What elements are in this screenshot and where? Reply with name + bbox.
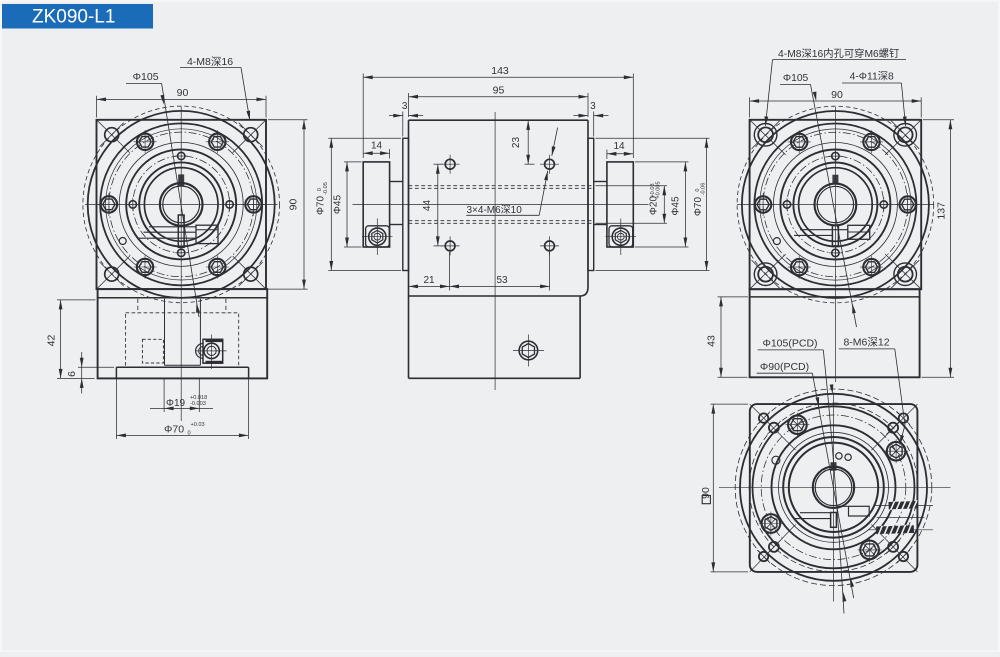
svg-text:Φ19: Φ19 [166,398,186,409]
svg-text:Φ70: Φ70 [693,197,704,217]
svg-text:+0.005: +0.005 [656,181,662,198]
svg-text:3: 3 [402,101,408,112]
svg-text:90: 90 [287,199,299,211]
svg-text:Φ105: Φ105 [783,73,809,84]
svg-text:3×4-M6深10: 3×4-M6深10 [467,204,523,216]
svg-text:90: 90 [700,487,712,499]
svg-text:4-M8深16: 4-M8深16 [187,56,233,68]
svg-text:42: 42 [46,335,58,347]
svg-text:95: 95 [493,84,505,96]
svg-text:4-Φ11深8: 4-Φ11深8 [850,71,894,83]
svg-text:23: 23 [511,137,522,149]
svg-text:Φ45: Φ45 [671,196,682,216]
svg-text:-0.06: -0.06 [700,183,706,196]
svg-text:137: 137 [936,202,948,220]
svg-text:Φ45: Φ45 [333,195,344,215]
svg-text:-0.05: -0.05 [323,182,329,195]
svg-text:Φ90(PCD): Φ90(PCD) [760,361,809,373]
svg-text:3: 3 [590,101,596,112]
svg-text:4-M8深16内孔可穿M6螺钉: 4-M8深16内孔可穿M6螺钉 [778,47,899,60]
svg-text:21: 21 [423,275,435,286]
svg-text:90: 90 [831,89,843,101]
svg-text:ZK090-L1: ZK090-L1 [32,7,115,28]
svg-text:43: 43 [705,335,717,347]
svg-text:+0.018: +0.018 [190,395,207,401]
svg-text:14: 14 [613,141,625,152]
svg-text:90: 90 [177,87,189,99]
svg-text:6: 6 [66,371,78,377]
svg-text:Φ70: Φ70 [315,196,326,216]
svg-text:+0.03: +0.03 [191,422,205,428]
svg-text:Φ70: Φ70 [164,423,184,435]
svg-text:Φ105(PCD): Φ105(PCD) [762,338,817,350]
svg-text:53: 53 [496,275,508,286]
svg-text:-0.003: -0.003 [190,401,206,407]
svg-text:44: 44 [422,200,433,212]
svg-text:0: 0 [188,431,191,437]
svg-text:8-M6深12: 8-M6深12 [843,337,889,349]
svg-text:14: 14 [371,141,383,152]
svg-text:Φ105: Φ105 [133,71,159,83]
svg-text:143: 143 [491,65,509,77]
